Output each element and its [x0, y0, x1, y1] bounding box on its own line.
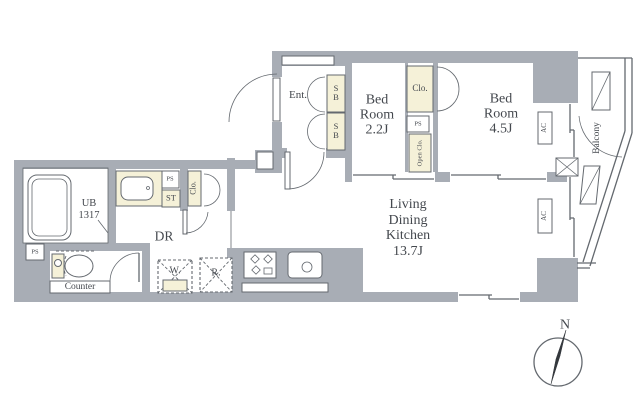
ac-2-label: AC: [541, 211, 549, 221]
entrance-door-arc: [229, 74, 277, 122]
closet-door-arc: [437, 89, 459, 111]
kitchen-counter-front: [242, 283, 328, 292]
compass-north-label: N: [560, 317, 570, 332]
bedroom-4-5-label: Bed Room 4.5J: [484, 92, 518, 137]
ldk-line3: Kitchen: [386, 228, 430, 244]
shoebox-door-arc: [308, 114, 326, 149]
unit-bath-line1: UB: [79, 198, 100, 210]
pipe-space-2-label: PS: [166, 175, 173, 182]
ldk-door-leaf: [285, 152, 290, 189]
dressing-room-label: DR: [155, 230, 174, 245]
washbasin: [116, 171, 162, 206]
toilet: [52, 251, 95, 278]
bedroom-4-5-line3: 4.5J: [484, 122, 518, 137]
duct-box: [556, 158, 578, 176]
balcony-label: Balcony: [592, 122, 602, 154]
floor-plan: Ent. SB SB Bed Room 2.2J Clo. PS Open Cl…: [0, 0, 640, 400]
pipe-space-3-label: PS: [31, 248, 38, 255]
toilet-door-arc: [110, 253, 139, 282]
bedroom-2-2-line1: Bed: [360, 93, 394, 108]
shoe-box-2-label: SB: [332, 122, 341, 140]
ac-1-label: AC: [541, 123, 549, 133]
hall-closet-label: Clo.: [190, 181, 199, 195]
ldk-balcony-door: [567, 176, 578, 258]
ldk-line2: Dining: [386, 213, 430, 229]
pipe-space-1-label: PS: [414, 120, 421, 127]
refrigerator-label: R.: [211, 268, 220, 279]
dr-door-leaf: [183, 210, 187, 234]
open-closet-label: Open Clo.: [416, 140, 423, 167]
closet-door-arc: [437, 67, 459, 89]
entrance-label: Ent.: [289, 89, 307, 101]
hall-closet-door-arc: [204, 174, 220, 190]
compass: [534, 330, 582, 386]
storage-label: ST: [166, 193, 176, 202]
bedroom-2-2-line2: Room: [360, 108, 394, 123]
ldk-line1: Living: [386, 197, 430, 213]
bedroom-2-2-line3: 2.2J: [360, 123, 394, 138]
balcony-outline: [577, 58, 632, 268]
bedroom-closet-label: Clo.: [412, 84, 427, 94]
unit-bath-label: UB 1317: [79, 198, 100, 222]
bathtub: [28, 175, 71, 240]
entrance-door-leaf: [273, 78, 280, 121]
toilet-bowl: [65, 255, 93, 277]
meter-niche: [257, 152, 273, 169]
bedroom-4-5-line1: Bed: [484, 92, 518, 107]
washer-label: W.: [169, 266, 180, 277]
entrance-frame: [282, 56, 334, 65]
hall-closet-door-arc: [204, 190, 220, 206]
ldk-label: Living Dining Kitchen 13.7J: [386, 197, 430, 259]
bedroom-2-2-label: Bed Room 2.2J: [360, 93, 394, 138]
counter-label: Counter: [65, 282, 96, 292]
shoebox-door-arc: [308, 77, 326, 112]
unit-bath-line2: 1317: [79, 210, 100, 222]
shoe-box-1-label: SB: [332, 84, 341, 102]
ldk-line4: 13.7J: [386, 244, 430, 260]
bedroom-4-5-line2: Room: [484, 107, 518, 122]
dr-door-arc: [186, 212, 208, 233]
sink: [288, 252, 322, 278]
